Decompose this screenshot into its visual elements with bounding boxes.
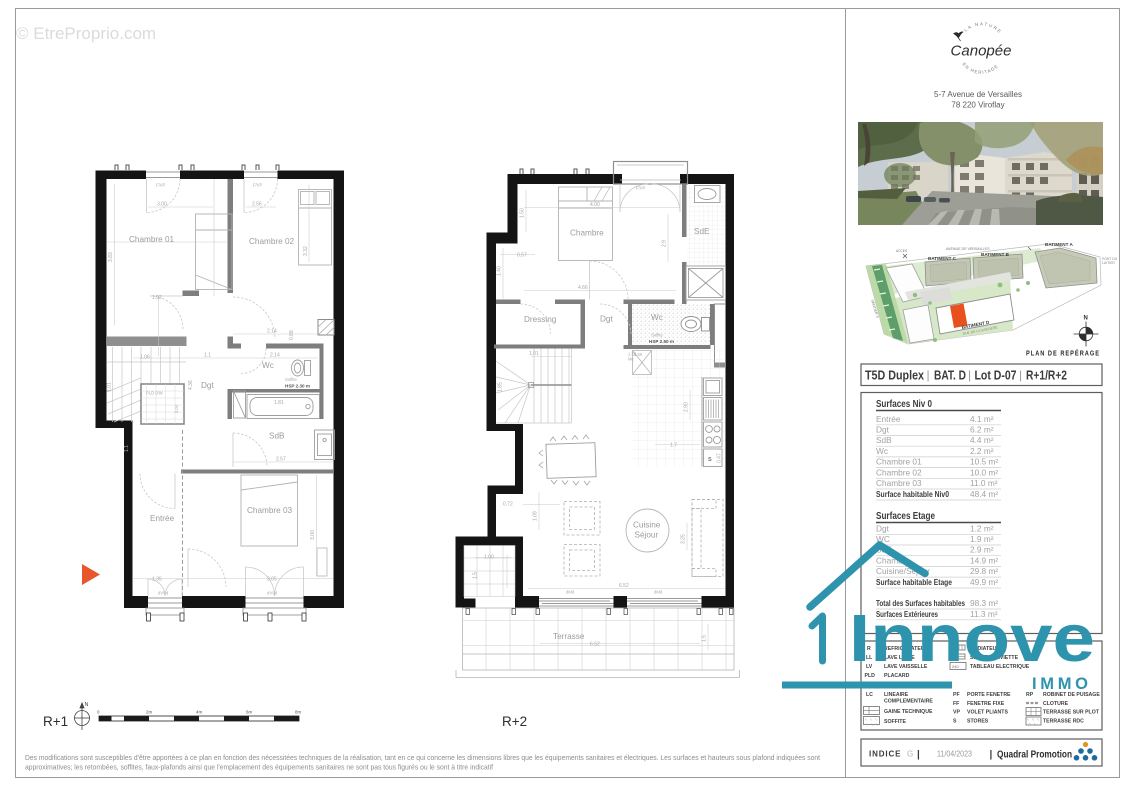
svg-text:3.83: 3.83 xyxy=(108,252,114,262)
svg-text:LC: LC xyxy=(866,692,873,698)
svg-text:BATIMENT A: BATIMENT A xyxy=(1045,242,1073,247)
svg-text:Chambre 02: Chambre 02 xyxy=(876,467,922,477)
svg-text:|: | xyxy=(968,368,971,382)
svg-text:|: | xyxy=(1019,368,1022,382)
svg-text:1.50: 1.50 xyxy=(520,208,526,218)
svg-text:Soffite: Soffite xyxy=(651,333,663,338)
svg-text:3.00: 3.00 xyxy=(157,202,167,208)
svg-text:LINEAIRE: LINEAIRE xyxy=(884,692,909,698)
svg-text:approximatives; les retombées,: approximatives; les retombées, soffites,… xyxy=(25,763,493,772)
svg-text:Chambre 02: Chambre 02 xyxy=(249,237,295,246)
svg-text:1.06: 1.06 xyxy=(140,355,150,361)
svg-text:1.7: 1.7 xyxy=(670,443,677,449)
svg-text:Dgt: Dgt xyxy=(876,425,890,435)
svg-text:F/VP: F/VP xyxy=(636,186,646,191)
svg-text:Innove: Innove xyxy=(849,601,1095,676)
svg-text:Surface habitable Etage: Surface habitable Etage xyxy=(876,577,952,587)
svg-text:1.92: 1.92 xyxy=(152,295,162,301)
svg-text:G: G xyxy=(907,750,913,759)
svg-text:Lot D-07: Lot D-07 xyxy=(975,368,1017,383)
svg-text:dVVd: dVVd xyxy=(267,591,278,596)
svg-text:GAINE TECHNIQUE: GAINE TECHNIQUE xyxy=(884,709,933,715)
svg-text:|: | xyxy=(927,368,930,382)
svg-text:Entrée: Entrée xyxy=(150,514,175,523)
svg-text:HSP 2.50 m: HSP 2.50 m xyxy=(649,339,674,344)
svg-text:Surfaces Etage: Surfaces Etage xyxy=(876,511,935,522)
svg-text:F/VP: F/VP xyxy=(156,183,166,188)
svg-text:48.4 m²: 48.4 m² xyxy=(970,489,998,499)
svg-text:SdE: SdE xyxy=(694,227,710,236)
svg-text:R+1/R+2: R+1/R+2 xyxy=(1026,368,1067,383)
svg-text:Dgt: Dgt xyxy=(600,315,613,324)
svg-text:BATIMENT C: BATIMENT C xyxy=(928,256,957,261)
svg-text:6.52: 6.52 xyxy=(619,583,629,589)
svg-text:Chambre 01: Chambre 01 xyxy=(876,457,922,467)
svg-text:|: | xyxy=(917,750,920,761)
svg-text:SOFFITE: SOFFITE xyxy=(884,719,906,725)
svg-text:STORES: STORES xyxy=(967,719,989,725)
svg-text:PORTE FENETRE: PORTE FENETRE xyxy=(967,692,1011,698)
svg-text:6m: 6m xyxy=(246,710,253,715)
svg-text:4.00: 4.00 xyxy=(590,202,600,208)
svg-text:2.57: 2.57 xyxy=(276,457,286,463)
svg-text:© EtreProprio.com: © EtreProprio.com xyxy=(16,24,156,43)
svg-text:Cuisine: Cuisine xyxy=(633,521,661,530)
svg-text:S: S xyxy=(953,719,957,725)
svg-text:LAITIER: LAITIER xyxy=(1102,261,1115,265)
svg-text:Terrasse: Terrasse xyxy=(553,632,585,641)
svg-text:1.81: 1.81 xyxy=(274,400,284,406)
svg-text:2.14: 2.14 xyxy=(267,329,277,335)
svg-text:BATIMENT B: BATIMENT B xyxy=(981,252,1010,257)
svg-text:1.35: 1.35 xyxy=(152,577,162,583)
svg-text:PF: PF xyxy=(953,692,960,698)
svg-text:0.72: 0.72 xyxy=(503,502,513,508)
svg-text:1.5: 1.5 xyxy=(473,572,479,579)
svg-text:4m: 4m xyxy=(196,710,203,715)
svg-text:R+1: R+1 xyxy=(43,714,68,729)
svg-text:Chambre: Chambre xyxy=(570,229,604,238)
svg-text:VP: VP xyxy=(953,710,960,716)
svg-text:6.2 m²: 6.2 m² xyxy=(970,425,994,435)
svg-text:1.00: 1.00 xyxy=(484,555,494,561)
svg-text:3.32: 3.32 xyxy=(303,246,309,256)
svg-text:0.57: 0.57 xyxy=(517,253,527,259)
svg-text:Quadral Promotion: Quadral Promotion xyxy=(997,750,1072,761)
svg-text:Soffite: Soffite xyxy=(285,377,297,382)
svg-text:Surface habitable Niv0: Surface habitable Niv0 xyxy=(876,489,949,499)
svg-text:3.00: 3.00 xyxy=(310,530,316,540)
svg-text:2.14: 2.14 xyxy=(270,353,280,359)
svg-text:4.66: 4.66 xyxy=(578,285,588,291)
svg-text:Chambre 03: Chambre 03 xyxy=(876,478,922,488)
svg-text:VOLET PLIANTS: VOLET PLIANTS xyxy=(967,710,1008,716)
svg-text:4.1 m²: 4.1 m² xyxy=(970,414,994,424)
svg-text:2.9: 2.9 xyxy=(662,240,668,247)
svg-text:78 220 Viroflay: 78 220 Viroflay xyxy=(951,101,1004,110)
svg-text:29.8 m²: 29.8 m² xyxy=(970,566,998,576)
svg-text:N: N xyxy=(85,702,89,708)
svg-text:Des modifications sont suscept: Des modifications sont susceptibles d'êt… xyxy=(25,753,820,762)
svg-text:AVENUE DE VERSAILLES: AVENUE DE VERSAILLES xyxy=(946,247,990,251)
svg-text:IMMO: IMMO xyxy=(1032,675,1091,693)
svg-text:Me: Me xyxy=(628,357,634,362)
svg-text:COMPLEMENTAIRE: COMPLEMENTAIRE xyxy=(884,699,933,705)
svg-text:S: S xyxy=(708,457,712,463)
svg-text:INDICE: INDICE xyxy=(869,750,902,759)
svg-text:CLOTURE: CLOTURE xyxy=(1043,701,1069,707)
svg-text:FENETRE FIXE: FENETRE FIXE xyxy=(967,701,1005,707)
svg-text:|: | xyxy=(990,750,993,761)
svg-text:SdB: SdB xyxy=(269,432,285,441)
svg-text:Chambre 03: Chambre 03 xyxy=(247,506,293,515)
svg-text:BAT. D: BAT. D xyxy=(934,368,966,383)
svg-text:49.9 m²: 49.9 m² xyxy=(970,577,998,587)
svg-text:2.90: 2.90 xyxy=(684,402,690,412)
svg-text:1.2 m²: 1.2 m² xyxy=(970,523,994,533)
svg-text:PLD 0/W: PLD 0/W xyxy=(146,391,163,396)
svg-text:11/04/2023: 11/04/2023 xyxy=(937,750,972,759)
svg-text:F/VP: F/VP xyxy=(253,183,263,188)
svg-text:R+2: R+2 xyxy=(502,714,527,729)
svg-text:14.9 m²: 14.9 m² xyxy=(970,555,998,565)
svg-text:Wc: Wc xyxy=(651,313,663,322)
svg-text:1.1: 1.1 xyxy=(204,353,211,359)
svg-text:PLAN DE REPÉRAGE: PLAN DE REPÉRAGE xyxy=(1026,349,1100,358)
svg-text:1.01: 1.01 xyxy=(529,351,539,357)
svg-text:TERRASSE SUR PLOT: TERRASSE SUR PLOT xyxy=(1043,710,1100,716)
svg-text:1.9 m²: 1.9 m² xyxy=(970,534,994,544)
svg-text:10.5 m²: 10.5 m² xyxy=(970,457,998,467)
svg-text:N: N xyxy=(1084,316,1088,322)
svg-text:1.85: 1.85 xyxy=(498,382,504,392)
svg-text:4.4 m²: 4.4 m² xyxy=(970,435,994,445)
svg-text:3.25: 3.25 xyxy=(681,534,687,544)
svg-text:4.36: 4.36 xyxy=(188,380,194,390)
svg-text:8m: 8m xyxy=(295,710,302,715)
svg-text:1.40: 1.40 xyxy=(497,266,503,276)
svg-text:Dressing: Dressing xyxy=(524,315,557,324)
svg-text:10.0 m²: 10.0 m² xyxy=(970,467,998,477)
svg-text:dMd: dMd xyxy=(654,590,663,595)
svg-text:0.88: 0.88 xyxy=(289,330,295,340)
svg-text:Wc: Wc xyxy=(876,446,888,456)
svg-text:1.1: 1.1 xyxy=(124,445,130,452)
svg-text:0.47: 0.47 xyxy=(717,453,723,463)
svg-text:1.09: 1.09 xyxy=(533,511,539,521)
svg-text:6.52: 6.52 xyxy=(590,642,600,648)
svg-text:0.04: 0.04 xyxy=(174,404,179,413)
svg-text:FF: FF xyxy=(953,701,959,707)
svg-text:2.2 m²: 2.2 m² xyxy=(970,446,994,456)
svg-text:SdB: SdB xyxy=(876,435,892,445)
svg-text:2.9 m²: 2.9 m² xyxy=(970,545,994,555)
svg-text:dMd: dMd xyxy=(566,590,575,595)
svg-text:Séjour: Séjour xyxy=(635,531,659,540)
svg-text:Wc: Wc xyxy=(262,361,274,370)
svg-text:5-7 Avenue de Versailles: 5-7 Avenue de Versailles xyxy=(934,90,1022,99)
svg-text:TERRASSE RDC: TERRASSE RDC xyxy=(1043,719,1084,725)
svg-text:Chambre 01: Chambre 01 xyxy=(129,235,175,244)
svg-text:1.5: 1.5 xyxy=(702,635,708,642)
svg-text:HSP 2.30 m: HSP 2.30 m xyxy=(285,384,310,389)
svg-text:dVVd: dVVd xyxy=(158,591,169,596)
svg-text:11.0 m²: 11.0 m² xyxy=(970,478,998,488)
svg-text:2.56: 2.56 xyxy=(252,202,262,208)
svg-text:Surfaces Niv 0: Surfaces Niv 0 xyxy=(876,399,932,410)
svg-text:2m: 2m xyxy=(146,710,153,715)
svg-text:Dgt: Dgt xyxy=(876,523,890,533)
svg-text:Canopée: Canopée xyxy=(951,43,1012,60)
svg-text:3.05: 3.05 xyxy=(267,577,277,583)
svg-text:T5D Duplex: T5D Duplex xyxy=(865,368,925,383)
svg-text:1.01: 1.01 xyxy=(107,382,113,392)
svg-text:Dgt: Dgt xyxy=(201,381,214,390)
svg-text:Entrée: Entrée xyxy=(876,414,901,424)
svg-text:ACCES: ACCES xyxy=(896,249,907,253)
